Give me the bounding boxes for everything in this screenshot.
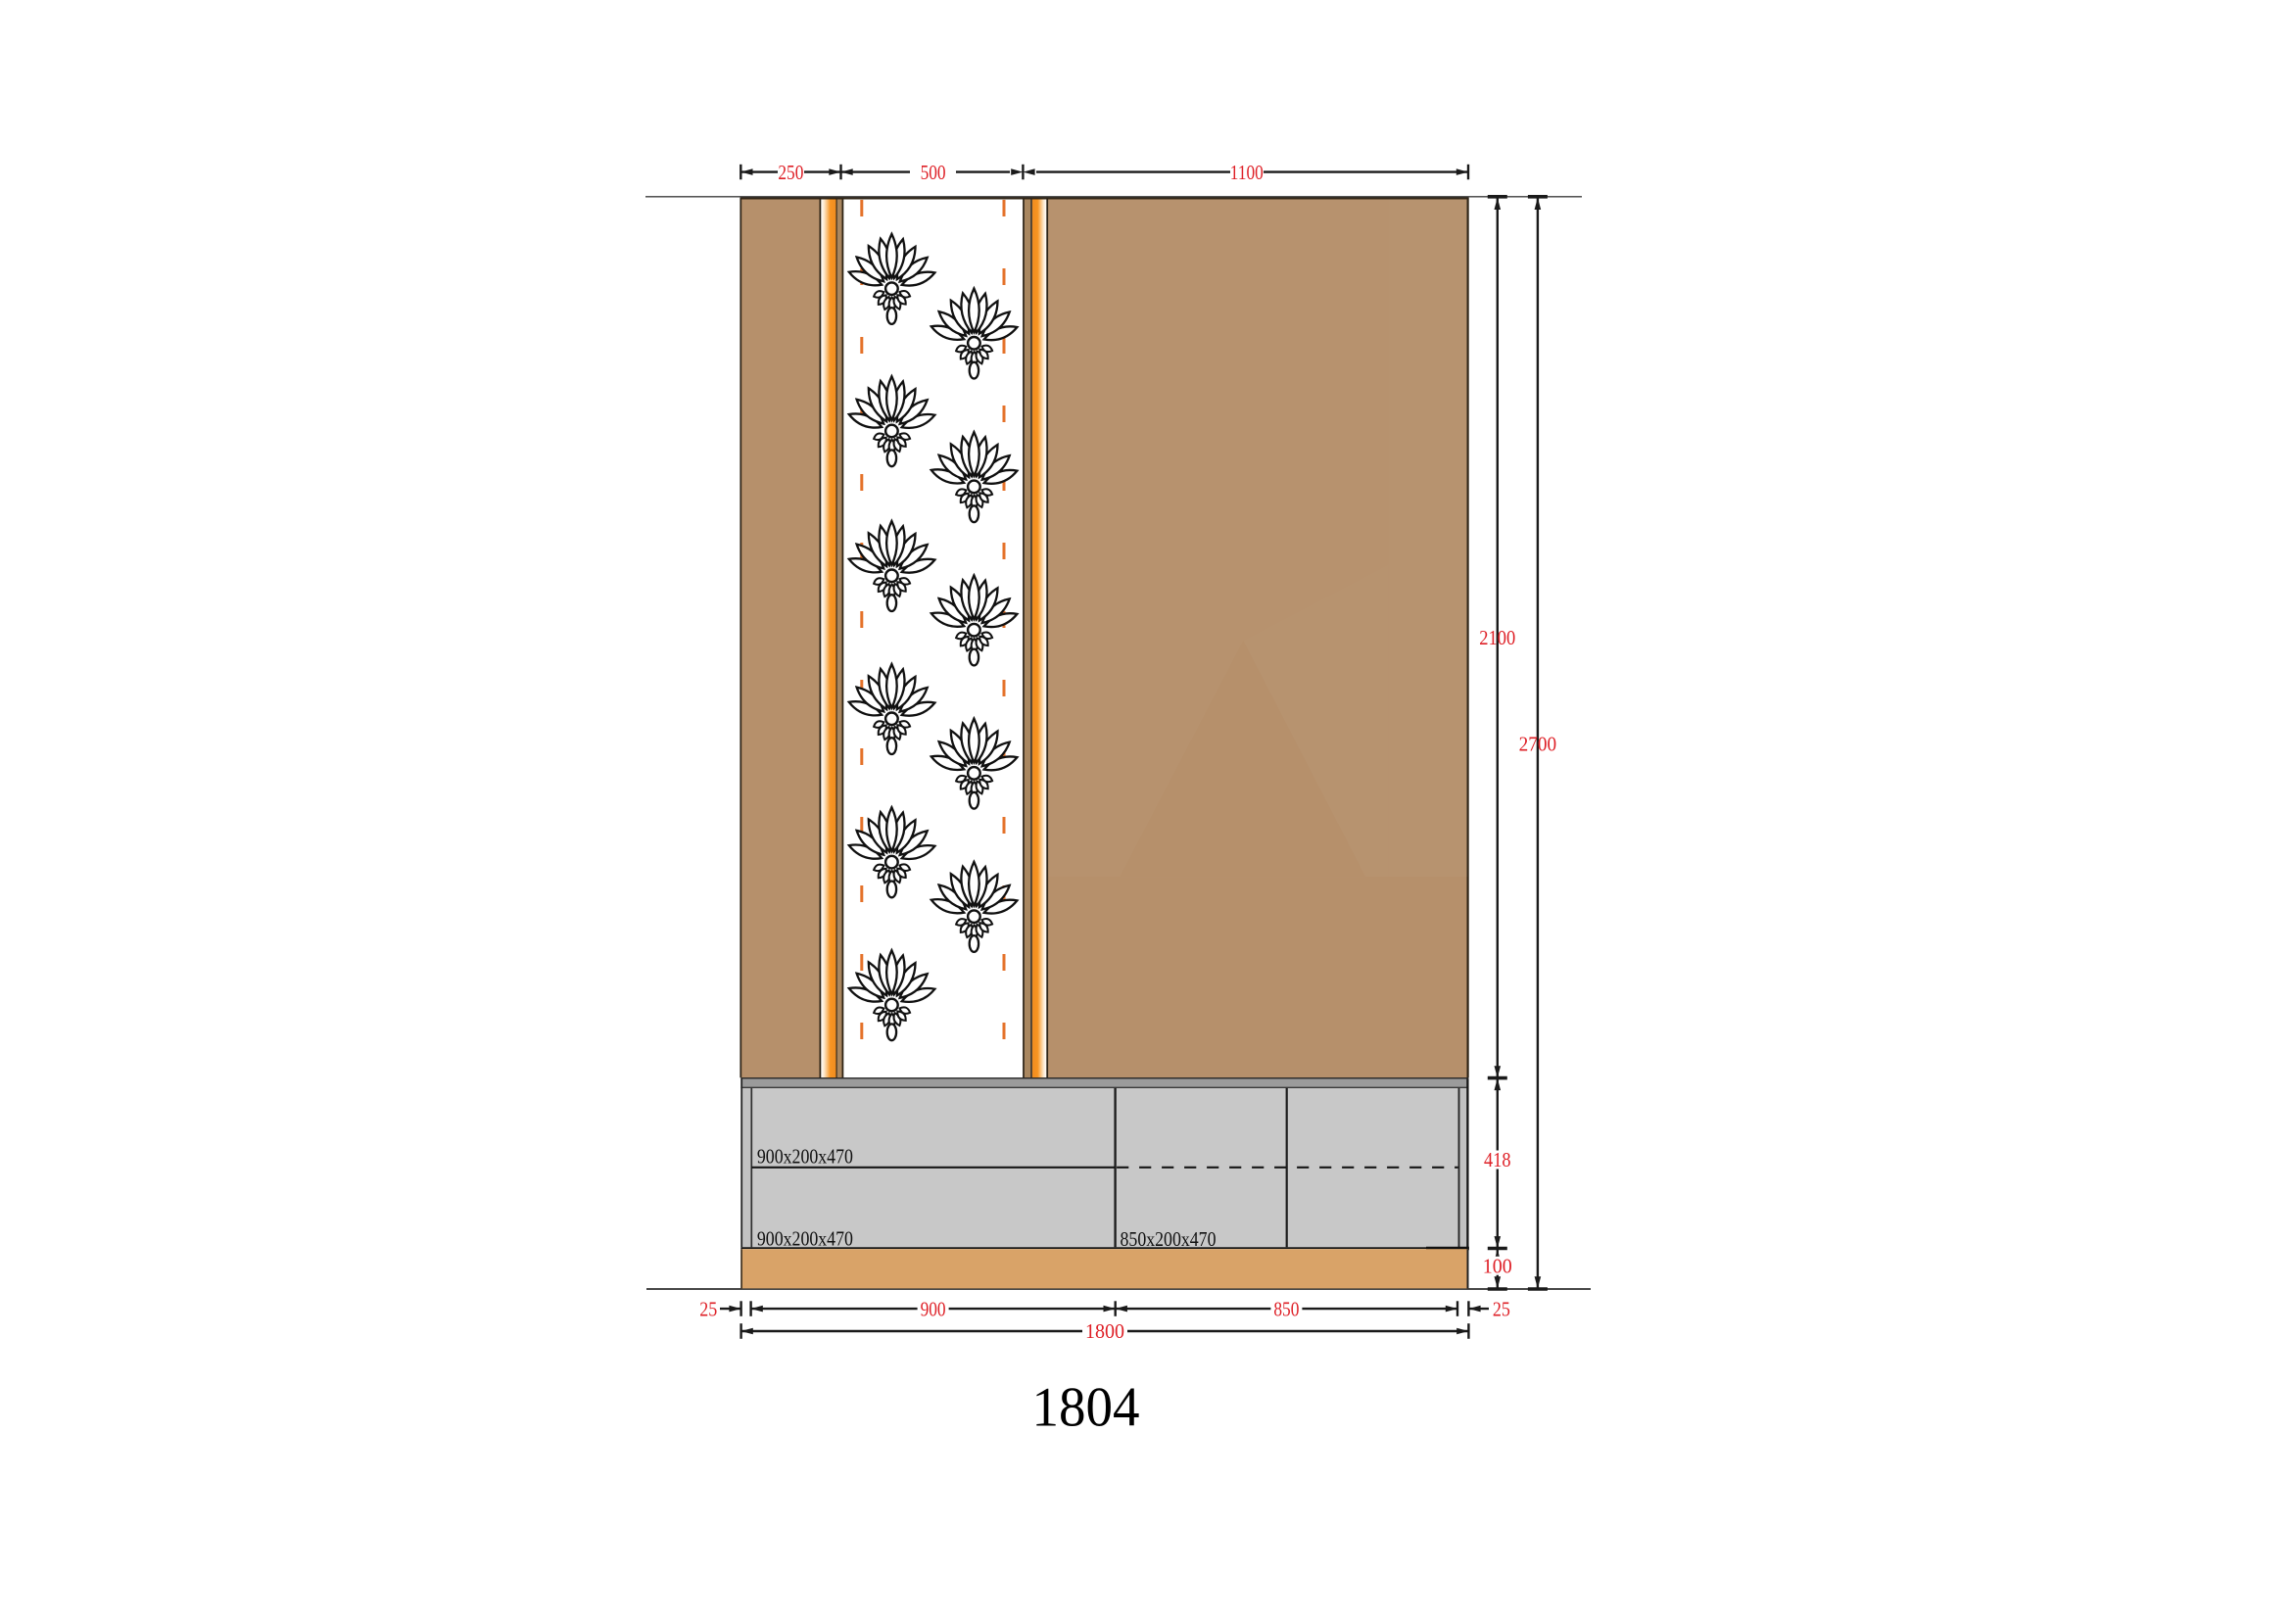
- svg-text:25: 25: [1493, 1297, 1510, 1320]
- svg-text:1100: 1100: [1230, 161, 1264, 184]
- svg-text:900: 900: [921, 1297, 946, 1320]
- svg-text:1804: 1804: [1032, 1377, 1140, 1439]
- svg-text:900x200x470: 900x200x470: [757, 1145, 853, 1169]
- svg-text:2100: 2100: [1479, 626, 1515, 649]
- svg-text:850x200x470: 850x200x470: [1121, 1227, 1217, 1251]
- svg-text:418: 418: [1484, 1148, 1511, 1171]
- svg-text:500: 500: [921, 161, 946, 184]
- svg-text:850: 850: [1273, 1297, 1299, 1320]
- svg-text:100: 100: [1483, 1254, 1512, 1277]
- svg-text:900x200x470: 900x200x470: [757, 1227, 853, 1251]
- svg-text:250: 250: [778, 161, 803, 184]
- svg-text:1800: 1800: [1085, 1319, 1124, 1343]
- svg-text:25: 25: [699, 1297, 717, 1320]
- svg-text:2700: 2700: [1519, 732, 1557, 755]
